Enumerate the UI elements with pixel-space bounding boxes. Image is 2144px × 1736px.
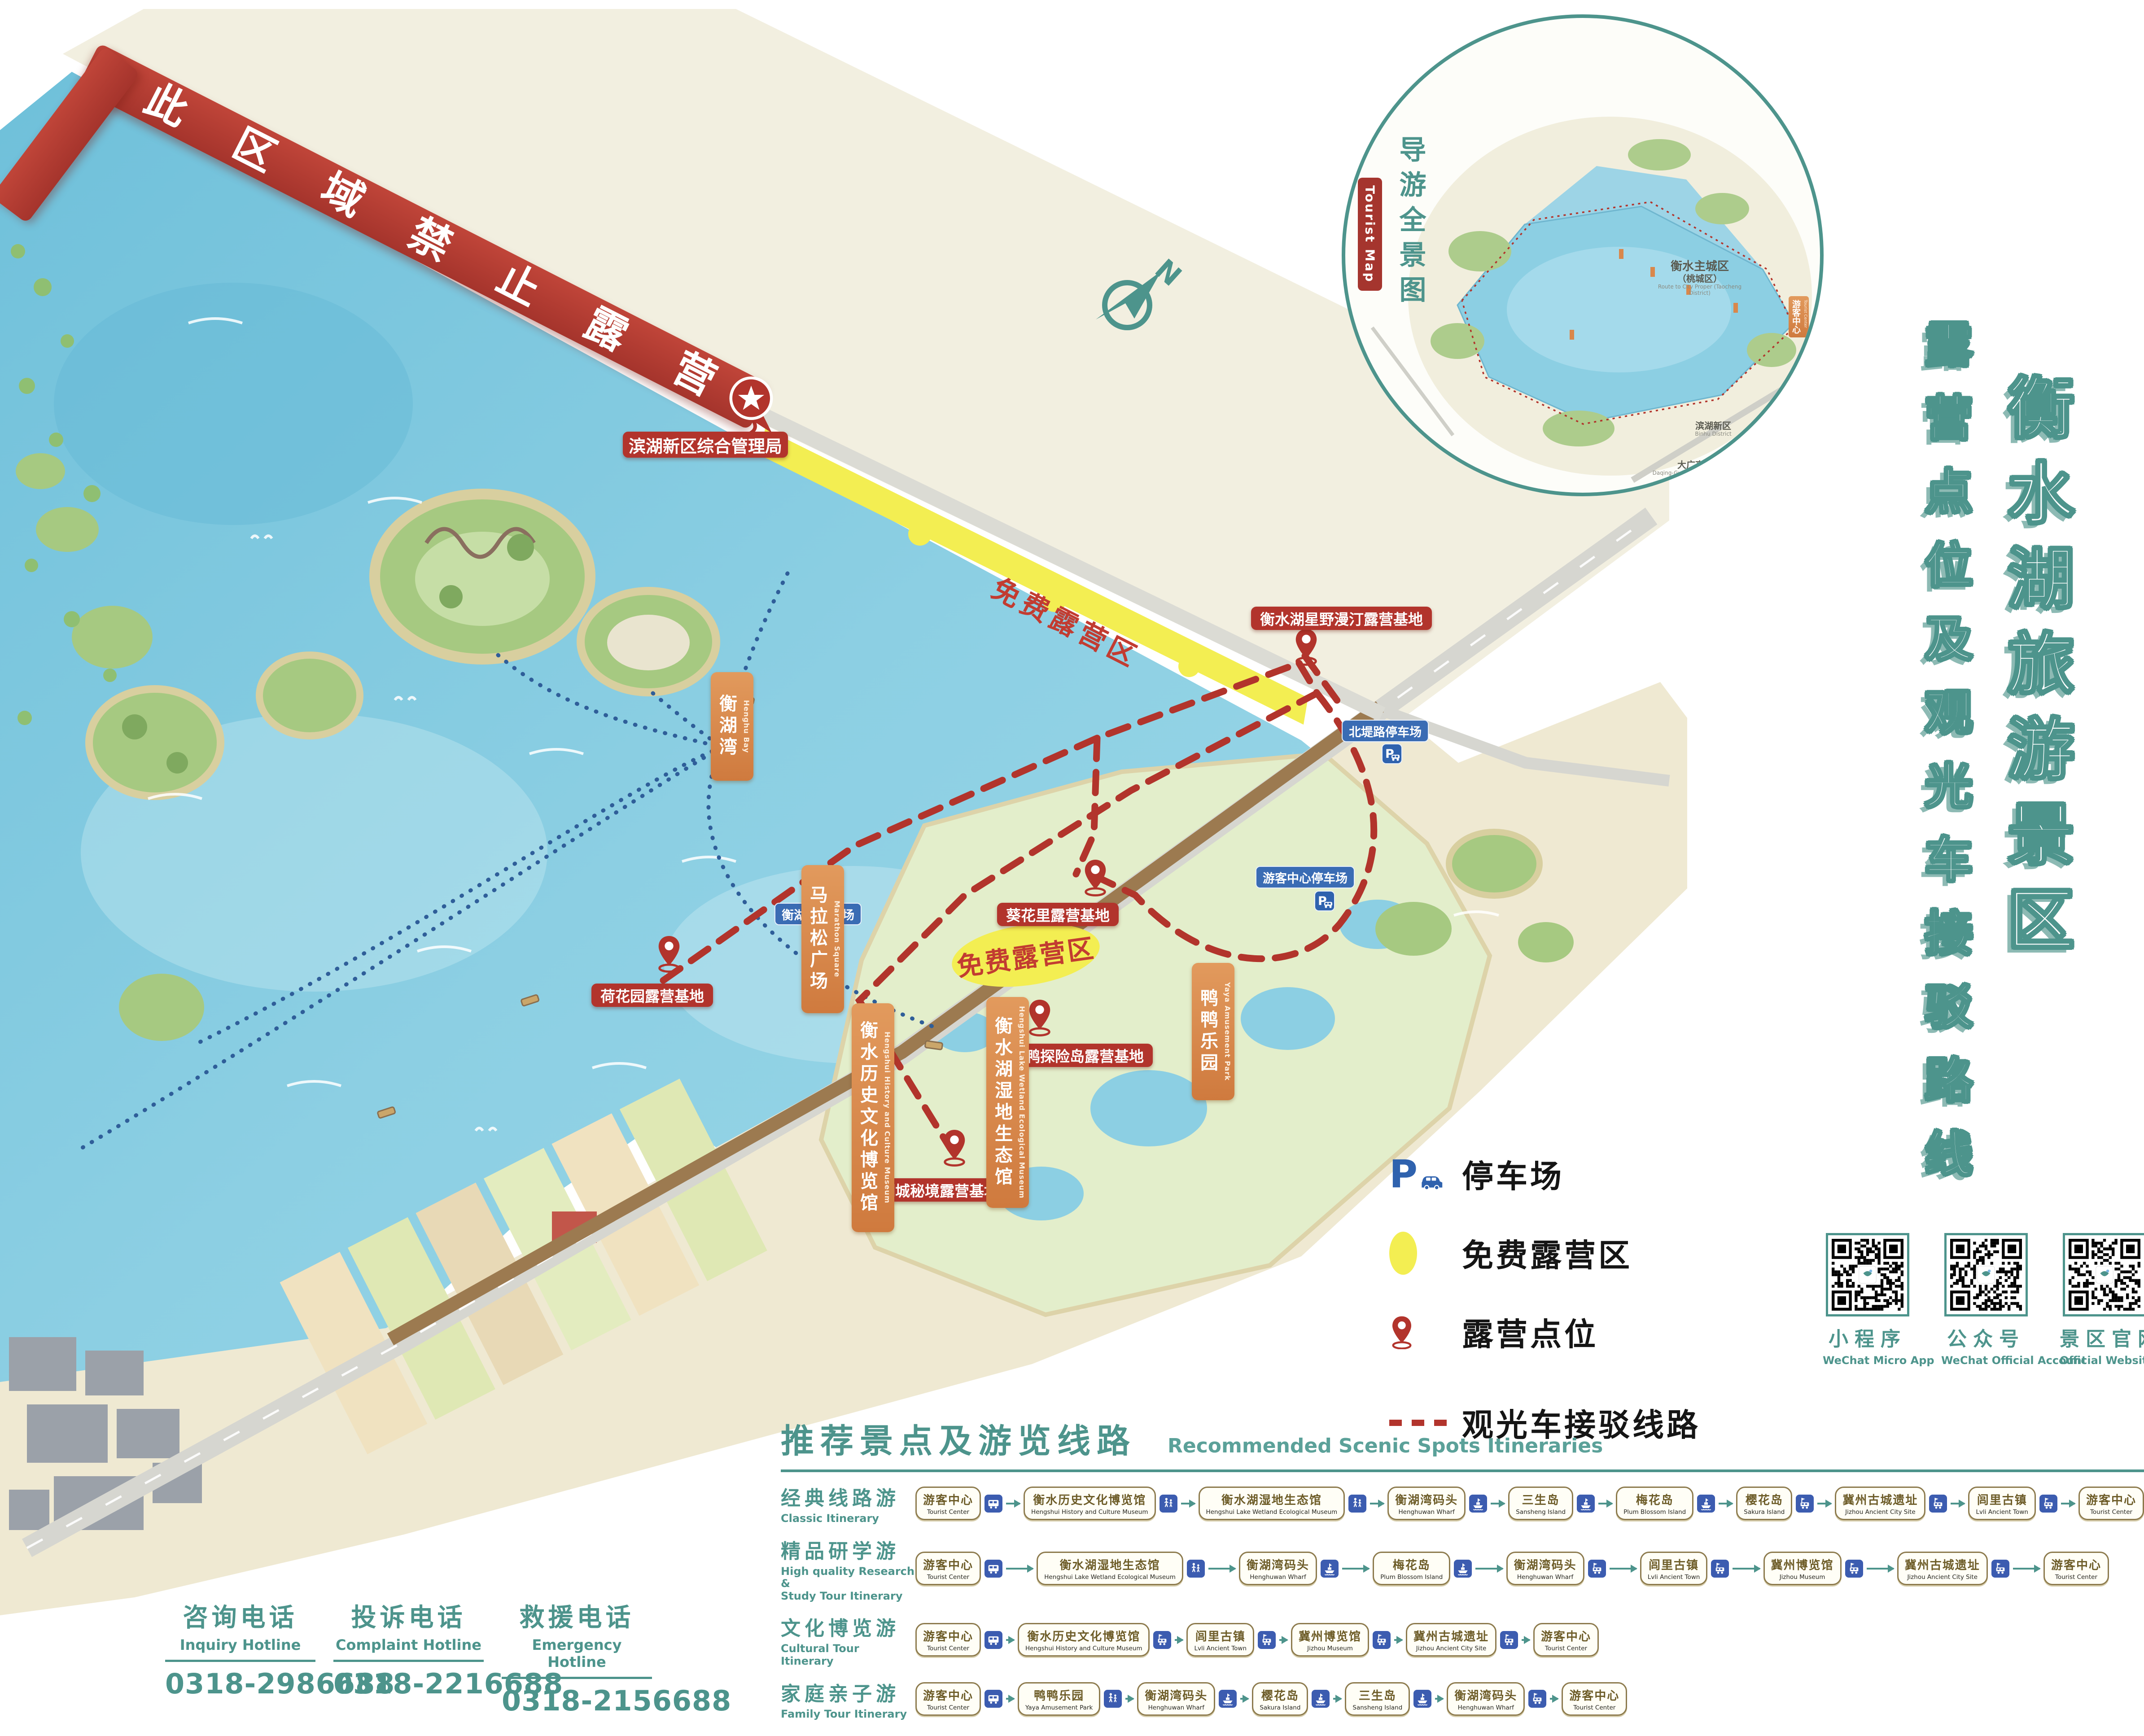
- legend-item: 露营点位: [1389, 1309, 1598, 1355]
- route-arrow-icon: [1733, 1568, 1759, 1570]
- stop-name-en: Sansheng Island: [1352, 1704, 1402, 1711]
- stop-name-en: Jizhou Ancient City Site: [1905, 1574, 1980, 1581]
- place-label-en: Hengshui Lake Wetland Ecological Museum: [1018, 1006, 1026, 1198]
- itinerary-divider: [781, 1469, 2144, 1472]
- hotline-divider: [165, 1660, 315, 1662]
- itinerary-stop: 游客中心Tourist Center: [2078, 1487, 2144, 1520]
- itinerary-stop: 衡水历史文化博览馆Hengshui History and Culture Mu…: [1024, 1487, 1155, 1520]
- hotline-label-cn: 投诉电话: [333, 1597, 484, 1634]
- place-label-cn: 衡湖湾: [713, 694, 739, 759]
- place-label-cn: 马拉松广场: [804, 885, 830, 993]
- route-arrow-icon: [1006, 1568, 1033, 1570]
- place-label-cn: 鸭鸭乐园: [1195, 988, 1221, 1075]
- inset-expressway-label: 大广高速 Daqing-Guangzhou Expressway: [1623, 460, 1767, 477]
- stop-name-cn: 游客中心: [923, 1491, 973, 1508]
- itinerary-stop: 闾里古镇Lvli Ancient Town: [1640, 1552, 1708, 1585]
- stop-name-en: Tourist Center: [923, 1574, 973, 1581]
- subtitle-vertical: 露营点位及观光车接驳路线: [1910, 319, 1979, 1203]
- itinerary-row-label-cn: 文化博览游: [781, 1612, 915, 1641]
- itinerary-stop: 樱花岛Sakura Island: [1252, 1682, 1308, 1716]
- hotline-block: 投诉电话Complaint Hotline0318-2216688: [333, 1597, 484, 1717]
- stop-name-en: Tourist Center: [923, 1645, 973, 1652]
- boat-icon: [1577, 1495, 1595, 1513]
- hotline-label-cn: 咨询电话: [165, 1597, 315, 1634]
- admin-office-label: 滨湖新区综合管理局: [623, 432, 788, 458]
- admin-star-marker-icon: [724, 376, 778, 439]
- route-arrow-icon: [2061, 1503, 2075, 1504]
- stop-name-cn: 衡湖湾码头: [1247, 1556, 1309, 1573]
- free-camp-zone-icon: [1389, 1232, 1457, 1275]
- boat-icon: [1413, 1690, 1431, 1708]
- route-arrow-icon: [1006, 1503, 1020, 1504]
- stop-name-en: Tourist Center: [923, 1704, 973, 1711]
- camp-site-label: 衡水湖星野漫汀露营基地: [1251, 607, 1432, 630]
- route-arrow-icon: [1951, 1503, 1965, 1504]
- stop-name-en: Lvli Ancient Town: [1194, 1645, 1247, 1652]
- hotline-label-en: Complaint Hotline: [333, 1636, 484, 1653]
- route-arrow-icon: [1435, 1698, 1443, 1700]
- parking-icon: P: [1314, 890, 1335, 914]
- inset-title: 导游全景图: [1391, 136, 1430, 310]
- stop-name-en: Tourist Center: [1541, 1645, 1591, 1652]
- place-label: 鸭鸭乐园Yaya Amusement Park: [1192, 963, 1234, 1100]
- itinerary-stop: 闾里古镇Lvli Ancient Town: [1186, 1623, 1254, 1657]
- itinerary-row-label-cn: 经典线路游: [781, 1482, 915, 1511]
- stop-name-en: Tourist Center: [1569, 1704, 1619, 1711]
- itinerary-stop: 游客中心Tourist Center: [915, 1487, 981, 1520]
- hotline-divider: [502, 1677, 652, 1679]
- stop-name-cn: 游客中心: [923, 1556, 973, 1573]
- itinerary-stops: 游客中心Tourist Center 衡水历史文化博览馆Hengshui His…: [915, 1487, 2144, 1520]
- stop-name-cn: 游客中心: [923, 1687, 973, 1703]
- route-arrow-icon: [1370, 1503, 1384, 1504]
- boat-icon: [1469, 1495, 1487, 1513]
- parking-label: 游客中心停车场: [1256, 866, 1355, 888]
- route-arrow-icon: [1006, 1698, 1014, 1700]
- itinerary-row: 经典线路游Classic Itinerary游客中心Tourist Center…: [781, 1482, 2144, 1525]
- route-arrow-icon: [1279, 1639, 1287, 1641]
- route-arrow-icon: [1719, 1503, 1733, 1504]
- qr-label-en: Official Website: [2060, 1354, 2144, 1367]
- stop-name-cn: 衡水历史文化博览馆: [1031, 1491, 1148, 1508]
- itinerary-row: 精品研学游High quality Research & Study Tour …: [781, 1535, 2144, 1603]
- itinerary-row: 家庭亲子游Family Tour Itinerary游客中心Tourist Ce…: [781, 1678, 2144, 1721]
- itinerary-stop: 衡湖湾码头Henghuwan Wharf: [1447, 1682, 1525, 1716]
- stop-name-cn: 衡水湖湿地生态馆: [1206, 1491, 1338, 1508]
- boat-icon: [1321, 1560, 1339, 1578]
- stop-name-en: Sansheng Island: [1516, 1509, 1566, 1516]
- camp-pin-icon: [1081, 858, 1109, 898]
- cart-icon: [1528, 1690, 1546, 1708]
- stop-name-en: Yaya Amusement Park: [1025, 1704, 1093, 1711]
- hotline-label-cn: 救援电话: [502, 1597, 652, 1634]
- compass-icon: N: [1090, 246, 1186, 342]
- parking-icon: P: [1381, 743, 1403, 766]
- place-label-en: Yaya Amusement Park: [1223, 982, 1232, 1081]
- stop-name-en: Henghuwan Wharf: [1145, 1704, 1208, 1711]
- qr-label-cn: 公众号: [1941, 1323, 2031, 1351]
- cart-icon: [1929, 1495, 1947, 1513]
- hotline-label-en: Emergency Hotline: [502, 1636, 652, 1670]
- route-arrow-icon: [1208, 1568, 1235, 1570]
- stop-name-en: Plum Blossom Island: [1623, 1509, 1686, 1516]
- stop-name-en: Hengshui History and Culture Museum: [1031, 1509, 1148, 1516]
- stop-name-en: Hengshui Lake Wetland Ecological Museum: [1044, 1574, 1176, 1581]
- itinerary-row-label-en: Cultural Tour Itinerary: [781, 1643, 915, 1667]
- itinerary-stop: 冀州博览馆Jizhou Museum: [1291, 1623, 1369, 1657]
- itinerary-stop: 衡水湖湿地生态馆Hengshui Lake Wetland Ecological…: [1199, 1487, 1345, 1520]
- route-arrow-icon: [1491, 1503, 1505, 1504]
- camp-pin-icon: [1389, 1315, 1457, 1349]
- cart-icon: [1796, 1495, 1814, 1513]
- stop-name-cn: 闾里古镇: [1976, 1491, 2028, 1508]
- route-arrow-icon: [1522, 1639, 1530, 1641]
- boat-icon: [1697, 1495, 1715, 1513]
- stop-name-en: Henghuwan Wharf: [1514, 1574, 1577, 1581]
- camp-pin-icon: [655, 934, 683, 975]
- qr-code-block: 景区官网Official Website: [2060, 1233, 2144, 1367]
- route-arrow-icon: [1342, 1568, 1369, 1570]
- stop-name-cn: 樱花岛: [1260, 1687, 1300, 1703]
- stop-name-en: Jizhou Ancient City Site: [1413, 1645, 1489, 1652]
- qr-code-image: [1826, 1233, 1909, 1316]
- itinerary-stop: 游客中心Tourist Center: [1533, 1623, 1599, 1657]
- stop-name-cn: 冀州博览馆: [1299, 1627, 1361, 1644]
- itinerary-stop: 衡湖湾码头Henghuwan Wharf: [1387, 1487, 1466, 1520]
- itinerary-stop: 闾里古镇Lvli Ancient Town: [1968, 1487, 2036, 1520]
- place-label: 衡水历史文化博览馆Hengshui History and Culture Mu…: [852, 1003, 894, 1232]
- stop-name-en: Jizhou Museum: [1299, 1645, 1361, 1652]
- itinerary-row-label: 文化博览游Cultural Tour Itinerary: [781, 1612, 915, 1667]
- place-label: 衡水湖湿地生态馆Hengshui Lake Wetland Ecological…: [986, 997, 1029, 1208]
- stop-name-en: Jizhou Museum: [1771, 1574, 1834, 1581]
- stop-name-cn: 游客中心: [1569, 1687, 1619, 1703]
- cart-icon: [1153, 1631, 1171, 1649]
- stop-name-en: Hengshui Lake Wetland Ecological Museum: [1206, 1509, 1338, 1516]
- inset-binhu-label: 滨湖新区 Binhu District: [1677, 421, 1749, 437]
- itinerary-row-label: 精品研学游High quality Research & Study Tour …: [781, 1535, 915, 1603]
- qr-code-block: 小程序WeChat Micro App: [1823, 1233, 1912, 1367]
- camp-site-label: 荷花园露营基地: [591, 984, 713, 1007]
- stop-name-en: Lvli Ancient Town: [1976, 1509, 2028, 1516]
- boat-icon: [1312, 1690, 1330, 1708]
- camp-site-label: 葵花里露营基地: [997, 903, 1119, 926]
- stop-name-cn: 游客中心: [2086, 1491, 2136, 1508]
- stop-name-cn: 梅花岛: [1380, 1556, 1443, 1573]
- qr-code-block: 公众号WeChat Official Account: [1941, 1233, 2031, 1367]
- cart-icon: [1373, 1631, 1391, 1649]
- parking-label-text: 北堤路停车场: [1349, 722, 1422, 740]
- itinerary-stop: 游客中心Tourist Center: [915, 1682, 981, 1716]
- stop-name-en: Henghuwan Wharf: [1247, 1574, 1309, 1581]
- itinerary-stop: 衡湖湾码头Henghuwan Wharf: [1137, 1682, 1215, 1716]
- camp-pin-icon: [941, 1128, 968, 1168]
- legend-item: 免费露营区: [1389, 1230, 1632, 1276]
- itinerary-stop: 衡湖湾码头Henghuwan Wharf: [1239, 1552, 1317, 1585]
- stop-name-en: Tourist Center: [2051, 1574, 2101, 1581]
- stop-name-cn: 衡湖湾码头: [1145, 1687, 1208, 1703]
- route-arrow-icon: [1394, 1639, 1402, 1641]
- itinerary-stop: 游客中心Tourist Center: [915, 1552, 981, 1585]
- stop-name-en: Sakura Island: [1744, 1509, 1785, 1516]
- place-label-cn: 衡水历史文化博览馆: [854, 1021, 880, 1215]
- itinerary-row-label-cn: 精品研学游: [781, 1535, 915, 1564]
- stop-name-cn: 鸭鸭乐园: [1025, 1687, 1093, 1703]
- qr-label-en: WeChat Micro App: [1823, 1354, 1912, 1367]
- bus-icon: [984, 1495, 1002, 1513]
- tourist-map-poster: 此区域禁止露营 滨湖新区综合管理局 免费露营区 免费露营区 N: [0, 0, 2144, 1736]
- itinerary-title-en: Recommended Scenic Spots Itineraries: [1168, 1434, 1603, 1457]
- compass-north-label: N: [1149, 253, 1186, 293]
- stop-name-en: Jizhou Ancient City Site: [1842, 1509, 1918, 1516]
- parking-icon: P: [1389, 1155, 1457, 1194]
- stop-name-cn: 闾里古镇: [1648, 1556, 1700, 1573]
- hotline-number: 0318-2216688: [333, 1667, 484, 1700]
- route-arrow-icon: [1475, 1568, 1502, 1570]
- stop-name-cn: 冀州古城遗址: [1905, 1556, 1980, 1573]
- stop-name-cn: 衡湖湾码头: [1454, 1687, 1517, 1703]
- qr-label-en: WeChat Official Account: [1941, 1354, 2031, 1367]
- place-label-en: Hengshui History and Culture Museum: [883, 1032, 892, 1203]
- inset-badge-label: Tourist Map: [1363, 185, 1378, 283]
- stop-name-en: Lvli Ancient Town: [1648, 1574, 1700, 1581]
- itinerary-row-label: 家庭亲子游Family Tour Itinerary: [781, 1678, 915, 1721]
- itinerary-stop: 鸭鸭乐园Yaya Amusement Park: [1018, 1682, 1100, 1716]
- place-label-en: Henghu Bay: [742, 700, 751, 753]
- inset-tourist-center-label: 游客中心 Tourist Center: [1789, 296, 1809, 337]
- boat-icon: [1219, 1690, 1237, 1708]
- qr-code-image: [1944, 1233, 2028, 1316]
- walk-icon: [1348, 1495, 1366, 1513]
- boat-icon: [1454, 1560, 1472, 1578]
- route-arrow-icon: [1550, 1698, 1558, 1700]
- itinerary-stops: 游客中心Tourist Center 鸭鸭乐园Yaya Amusement Pa…: [915, 1682, 1535, 1716]
- inset-city-label: 衡水主城区 （桃城区） Route to City Proper (Taoche…: [1650, 260, 1749, 296]
- legend-item-label: 露营点位: [1462, 1309, 1598, 1355]
- legend-item-label: 停车场: [1462, 1151, 1564, 1197]
- stop-name-cn: 冀州古城遗址: [1413, 1627, 1489, 1644]
- place-label: 衡湖湾Henghu Bay: [711, 672, 753, 781]
- walk-icon: [1160, 1495, 1177, 1513]
- walk-icon: [1187, 1560, 1205, 1578]
- route-arrow-icon: [1610, 1568, 1636, 1570]
- stop-name-cn: 游客中心: [923, 1627, 973, 1644]
- stop-name-en: Sakura Island: [1260, 1704, 1300, 1711]
- stop-name-cn: 游客中心: [1541, 1627, 1591, 1644]
- inset-badge: Tourist Map: [1358, 178, 1382, 291]
- itinerary-stop: 梅花岛Plum Blossom Island: [1616, 1487, 1693, 1520]
- route-arrow-icon: [2013, 1568, 2040, 1570]
- itinerary-row-label-en: Family Tour Itinerary: [781, 1708, 915, 1721]
- stop-name-cn: 梅花岛: [1623, 1491, 1686, 1508]
- itinerary-stop: 游客中心Tourist Center: [915, 1623, 981, 1657]
- cart-icon: [1258, 1631, 1276, 1649]
- camp-pin-icon: [1292, 627, 1320, 668]
- itinerary-stop: 衡水历史文化博览馆Hengshui History and Culture Mu…: [1018, 1623, 1150, 1657]
- stop-name-cn: 三生岛: [1516, 1491, 1566, 1508]
- itinerary-stop: 三生岛Sansheng Island: [1345, 1682, 1410, 1716]
- hotline-divider: [333, 1660, 484, 1662]
- itinerary-stop: 衡水湖湿地生态馆Hengshui Lake Wetland Ecological…: [1037, 1552, 1183, 1585]
- stop-name-cn: 三生岛: [1352, 1687, 1402, 1703]
- hotline-block: 咨询电话Inquiry Hotline0318-2986688: [165, 1597, 315, 1717]
- hotline-number: 0318-2156688: [502, 1684, 652, 1717]
- itinerary-stop: 冀州博览馆Jizhou Museum: [1763, 1552, 1842, 1585]
- itinerary-stop: 冀州古城遗址Jizhou Ancient City Site: [1897, 1552, 1988, 1585]
- cart-icon: [1845, 1560, 1863, 1578]
- stop-name-en: Henghuwan Wharf: [1454, 1704, 1517, 1711]
- itinerary-row-label-cn: 家庭亲子游: [781, 1678, 915, 1706]
- itinerary-row: 文化博览游Cultural Tour Itinerary游客中心Tourist …: [781, 1612, 2144, 1667]
- route-arrow-icon: [1240, 1698, 1248, 1700]
- stop-name-cn: 衡水湖湿地生态馆: [1044, 1556, 1176, 1573]
- stop-name-en: Hengshui History and Culture Museum: [1025, 1645, 1142, 1652]
- stop-name-en: Henghuwan Wharf: [1395, 1509, 1458, 1516]
- place-label: 马拉松广场Marathon Square: [801, 865, 844, 1013]
- stop-name-cn: 冀州古城遗址: [1842, 1491, 1918, 1508]
- route-arrow-icon: [1867, 1568, 1894, 1570]
- route-arrow-icon: [1333, 1698, 1341, 1700]
- itinerary-row-label-en: Classic Itinerary: [781, 1513, 915, 1525]
- itinerary-row-label-en: High quality Research & Study Tour Itine…: [781, 1565, 915, 1603]
- itinerary-stop: 游客中心Tourist Center: [1562, 1682, 1627, 1716]
- place-label-cn: 衡水湖湿地生态馆: [989, 1016, 1015, 1189]
- itinerary-stop: 梅花岛Plum Blossom Island: [1373, 1552, 1450, 1585]
- parking-label-text: 游客中心停车场: [1263, 869, 1348, 886]
- walk-icon: [1104, 1690, 1122, 1708]
- stop-name-cn: 衡水历史文化博览馆: [1025, 1627, 1142, 1644]
- place-label-en: Marathon Square: [833, 901, 841, 977]
- hotline-section: 咨询电话Inquiry Hotline0318-2986688投诉电话Compl…: [165, 1597, 652, 1717]
- hotline-block: 救援电话Emergency Hotline0318-2156688: [502, 1597, 652, 1717]
- route-arrow-icon: [1598, 1503, 1612, 1504]
- itinerary-stop: 三生岛Sansheng Island: [1508, 1487, 1573, 1520]
- qr-code-image: [2063, 1233, 2144, 1316]
- cart-icon: [1588, 1560, 1606, 1578]
- stop-name-cn: 衡湖湾码头: [1514, 1556, 1577, 1573]
- itinerary-section: 推荐景点及游览线路 Recommended Scenic Spots Itine…: [781, 1414, 2144, 1720]
- stop-name-en: Tourist Center: [923, 1509, 973, 1516]
- stop-name-en: Plum Blossom Island: [1380, 1574, 1443, 1581]
- qr-label-cn: 景区官网: [2060, 1323, 2144, 1351]
- bus-icon: [984, 1560, 1002, 1578]
- stop-name-en: Tourist Center: [2086, 1509, 2136, 1516]
- stop-name-cn: 冀州博览馆: [1771, 1556, 1834, 1573]
- itinerary-stop: 游客中心Tourist Center: [2043, 1552, 2109, 1585]
- cart-icon: [1711, 1560, 1729, 1578]
- stop-name-cn: 闾里古镇: [1194, 1627, 1247, 1644]
- route-arrow-icon: [1006, 1639, 1014, 1641]
- itinerary-row-label: 经典线路游Classic Itinerary: [781, 1482, 915, 1525]
- itinerary-title-cn: 推荐景点及游览线路: [781, 1414, 1136, 1462]
- bus-icon: [984, 1631, 1002, 1649]
- legend-item-label: 免费露营区: [1462, 1230, 1632, 1276]
- cart-icon: [2039, 1495, 2057, 1513]
- qr-label-cn: 小程序: [1823, 1323, 1912, 1351]
- itinerary-stop: 樱花岛Sakura Island: [1736, 1487, 1792, 1520]
- hotline-number: 0318-2986688: [165, 1667, 315, 1700]
- itinerary-stops: 游客中心Tourist Center 衡水历史文化博览馆Hengshui His…: [915, 1623, 1481, 1657]
- hotline-label-en: Inquiry Hotline: [165, 1636, 315, 1653]
- inset-overview-map: 导游全景图 Tourist Map 衡水主城区 （桃城区） Route to C…: [1342, 14, 1824, 496]
- camp-pin-icon: [1026, 998, 1054, 1038]
- itinerary-stops: 游客中心Tourist Center 衡水湖湿地生态馆Hengshui Lake…: [915, 1552, 2109, 1585]
- cart-icon: [1991, 1560, 2009, 1578]
- itinerary-stop: 衡湖湾码头Henghuwan Wharf: [1506, 1552, 1584, 1585]
- route-arrow-icon: [1181, 1503, 1195, 1504]
- legend-item: P 停车场: [1389, 1151, 1564, 1197]
- stop-name-cn: 游客中心: [2051, 1556, 2101, 1573]
- bus-icon: [984, 1690, 1002, 1708]
- main-title-vertical: 衡水湖旅游景区: [1987, 373, 2083, 970]
- itinerary-stop: 冀州古城遗址Jizhou Ancient City Site: [1835, 1487, 1925, 1520]
- itinerary-stop: 冀州古城遗址Jizhou Ancient City Site: [1406, 1623, 1496, 1657]
- route-arrow-icon: [1817, 1503, 1831, 1504]
- cart-icon: [1500, 1631, 1518, 1649]
- stop-name-cn: 衡湖湾码头: [1395, 1491, 1458, 1508]
- parking-label: 北堤路停车场: [1342, 720, 1429, 742]
- stop-name-cn: 樱花岛: [1744, 1491, 1785, 1508]
- route-arrow-icon: [1175, 1639, 1183, 1641]
- route-arrow-icon: [1125, 1698, 1133, 1700]
